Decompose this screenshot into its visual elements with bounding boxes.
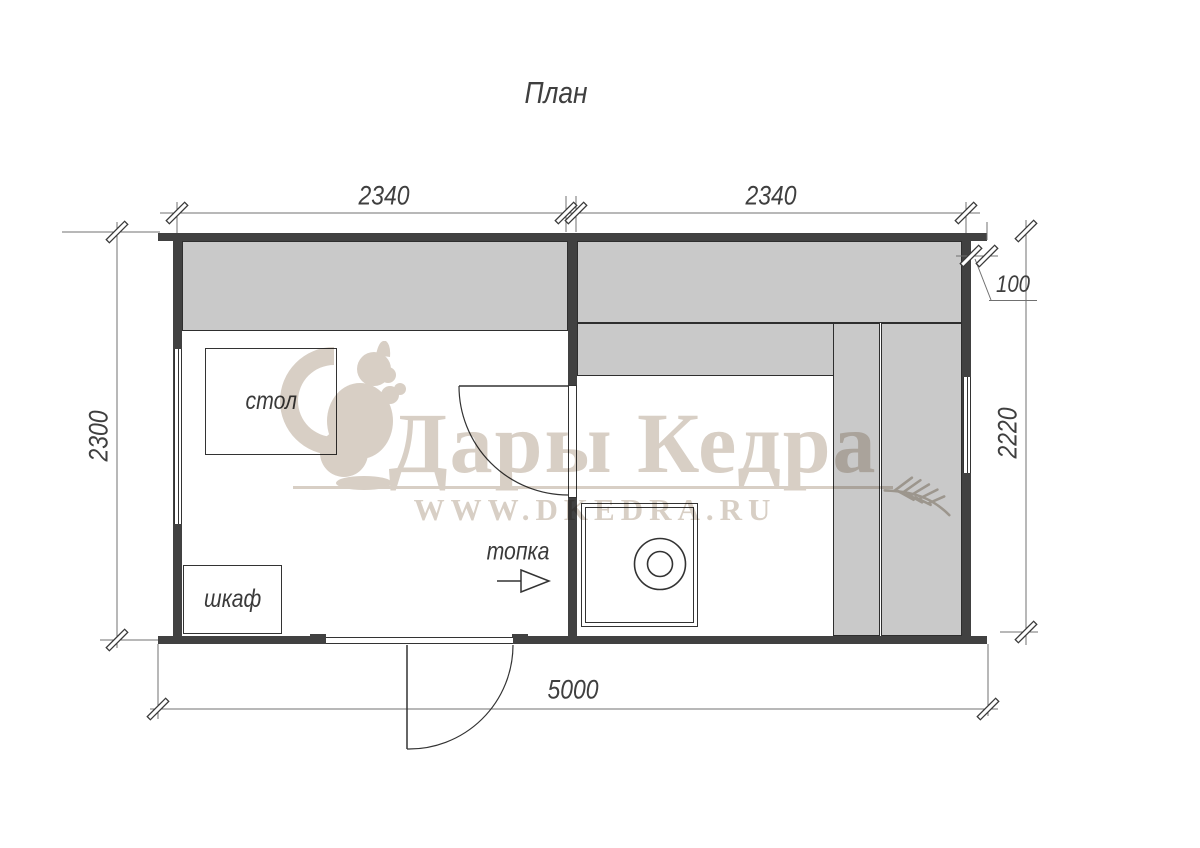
stove-inner-border — [585, 507, 694, 623]
bench-sauna-side-wide — [881, 323, 962, 636]
dim-right-height: 2220 — [993, 407, 1024, 458]
wall-partition-upper — [568, 241, 577, 385]
plan-title: План — [524, 75, 587, 111]
wall-top — [158, 233, 987, 241]
dim-top-right: 2340 — [745, 181, 796, 212]
watermark-underline — [293, 486, 893, 489]
stove-direction-arrow-icon — [497, 570, 549, 592]
table-label: стол — [245, 387, 296, 416]
dim-right-offset: 100 — [996, 271, 1030, 299]
dim-left-height: 2300 — [84, 410, 115, 461]
door-swings — [407, 386, 568, 749]
cabinet-label: шкаф — [204, 585, 261, 614]
window-right-wall — [963, 377, 971, 473]
window-left-wall — [174, 349, 182, 524]
bench-sauna-second-tier — [577, 323, 834, 376]
bench-sauna-top — [577, 241, 962, 323]
cabinet-box: шкаф — [183, 565, 282, 634]
stove-direction-label: топка — [487, 538, 550, 567]
wall-bottom-left-segment — [158, 636, 311, 644]
wall-partition-lower — [568, 498, 577, 636]
table-box: стол — [205, 348, 337, 455]
dim-top-left: 2340 — [358, 181, 409, 212]
dim-total-width: 5000 — [547, 675, 598, 706]
bench-sauna-side-narrow — [833, 323, 880, 636]
watermark-brand-text: Дары Кедра — [388, 393, 877, 493]
stove-box — [581, 503, 698, 627]
door-jamb-left — [310, 634, 326, 644]
door-jamb-right — [512, 634, 528, 644]
floor-plan-canvas: План стол шкаф — [0, 0, 1200, 848]
entry-threshold — [326, 637, 513, 644]
wall-bottom-right-segment — [528, 636, 987, 644]
bench-left-room — [182, 241, 568, 331]
interior-door-leaf — [568, 385, 577, 498]
